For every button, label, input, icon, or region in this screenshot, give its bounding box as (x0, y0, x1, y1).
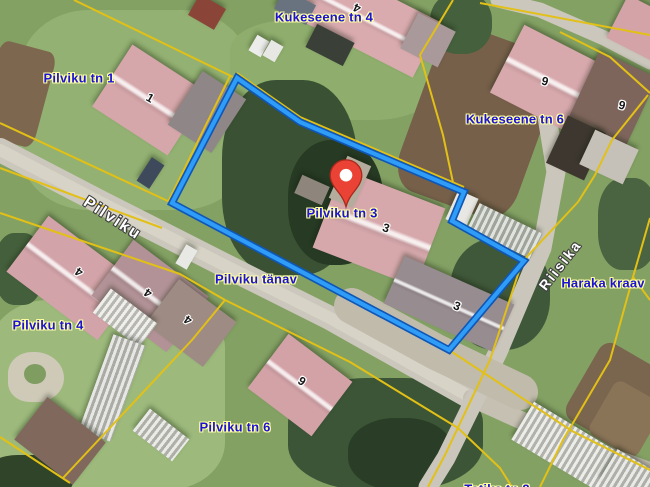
topright-pink-roof (606, 0, 650, 65)
van-white (175, 244, 197, 270)
address-label: Haraka kraav (561, 276, 644, 291)
address-label: Kukeseene tn 4 (275, 10, 373, 25)
location-marker-pin[interactable] (327, 158, 365, 210)
trees-bottom-dark (348, 418, 453, 487)
address-label: Kukeseene tn 6 (466, 112, 564, 127)
address-label: Pilviku tn 4 (12, 318, 83, 333)
address-label: Tatika tn 2 (464, 482, 530, 487)
address-label: Pilviku tänav (215, 272, 297, 287)
trees-rightedge (598, 178, 650, 270)
map-canvas[interactable]: 1466334446 Kukeseene tn 4Pilviku tn 1Kuk… (0, 0, 650, 487)
rock-garden (8, 352, 64, 402)
address-label: Pilviku tn 6 (199, 420, 270, 435)
pin-body (330, 160, 362, 207)
pin-hole (340, 169, 353, 182)
address-label: Pilviku tn 1 (43, 71, 114, 86)
